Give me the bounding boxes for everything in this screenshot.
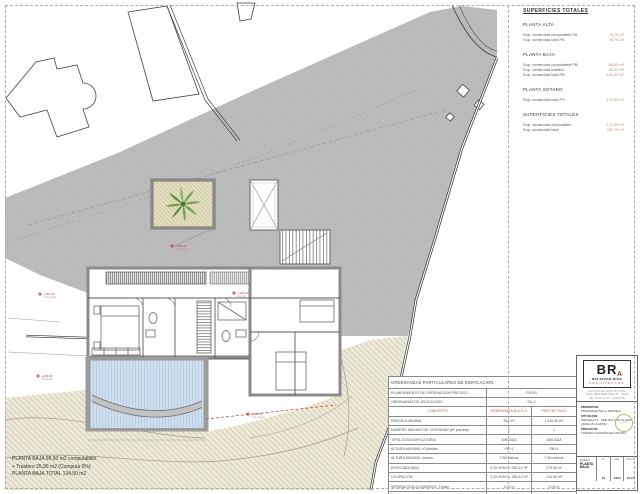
table-row: SEPARACION A LINDEROS, Fondo3,00 m3,00 m <box>389 482 577 491</box>
svg-text:cota jardin: cota jardin <box>42 378 54 381</box>
logo-initials: BR <box>584 364 630 376</box>
svg-text:cota piscina: cota piscina <box>252 416 266 419</box>
pool <box>86 357 209 440</box>
corridor-glazing-2 <box>210 272 250 284</box>
surfaces-panel: SUPERFICIES TOTALES PLANTA ALTA Sup. con… <box>509 0 640 355</box>
firm-contact: ESTUDIO DE ARQUITECTURA AVDA. MEDITERRAN… <box>580 390 634 400</box>
project-value: VIVIENDA UNIFAMILIAR AISLADA <box>581 432 633 436</box>
table-row: ALTURA MAXIMA, nº plantasPB+1PB+1 <box>389 444 577 453</box>
panel-divider-dashed <box>508 5 509 489</box>
scale-cell: ESC.1/100 <box>610 457 624 481</box>
promoter-value: PROPIEDAD DE LA PARCELA <box>581 410 633 414</box>
svg-text:+163,90: +163,90 <box>42 374 53 378</box>
note-line-3: PLANTA BAJA TOTAL 134,50 m2 <box>12 471 96 479</box>
corridor-glazing <box>106 272 206 284</box>
section-planta-alta: PLANTA ALTA <box>523 22 554 27</box>
svg-text:+165,00: +165,00 <box>238 291 249 295</box>
plan-strip: PLANO: PLANTA BAJA Nº03 ESC.1/100 FECHA0… <box>577 456 637 481</box>
svg-text:cota pb: cota pb <box>238 295 247 298</box>
table-row: OCUPACION0,25 m²/m² = 283,12 m²134,50 m² <box>389 473 577 482</box>
table-row: NUMERO MAXIMO DE VIVIENDAS (Nº parcela)1… <box>389 426 577 435</box>
plan-sheet: +164,25 cota porche +163,90 cota jardin … <box>0 0 640 494</box>
logo-accent-letter: A <box>617 371 622 378</box>
plan-number-cell: Nº03 <box>596 457 610 481</box>
firm-profession: ARQUITECTOS <box>584 381 630 385</box>
project-info: PROMOTOR: PROPIEDAD DE LA PARCELA SITUAC… <box>577 401 637 456</box>
svg-text:cota patio: cota patio <box>176 248 187 251</box>
ordinances-title: ORDENANZAS PARTICULARES DE EDIFICACION <box>389 377 577 389</box>
table-row: PARCELA MINIMA500 m²1.132,50 m² <box>389 416 577 425</box>
title-block: BR A BALTASAR RÍOS ARQUITECTOS ESTUDIO D… <box>576 355 638 491</box>
section-planta-baja: PLANTA BAJA <box>523 52 555 57</box>
small-parcel-outline <box>237 3 255 21</box>
svg-text:+165,30: +165,30 <box>176 244 187 248</box>
section-planta-sotano: PLANTA SÓTANO <box>523 87 563 92</box>
date-cell: FECHA04.16 <box>623 457 637 481</box>
table-row: TIPOLOGIA EDIFICATORIAAISLADAAISLADA <box>389 435 577 444</box>
neighbour-building-outline <box>6 58 96 137</box>
level-marker: +163,90 cota jardin <box>36 374 54 381</box>
section-totales: SUPERFICIES TOTALES <box>523 112 579 117</box>
road-parcel-outline <box>128 6 199 101</box>
surface-row: Sup. construida total PA76,76 m² <box>523 37 624 42</box>
surface-row: Sup. construida total PB134,50 m² <box>523 72 624 77</box>
plan-name: PLANTA BAJA <box>580 462 593 470</box>
note-line-2: + Trastero 35,90 m2 (Computa 0%) <box>12 464 96 472</box>
table-row: ALTURA MAXIMA, metros7,50 metros7,50 met… <box>389 454 577 463</box>
architect-logo: BR A BALTASAR RÍOS ARQUITECTOS <box>583 360 631 388</box>
svg-text:cota porche: cota porche <box>44 296 58 299</box>
svg-text:+162,50: +162,50 <box>252 412 263 416</box>
basement-stair <box>197 301 211 353</box>
area-note: PLANTA BAJA 98,60 m2 computables + Trast… <box>12 456 96 479</box>
note-line-1: PLANTA BAJA 98,60 m2 computables <box>12 456 96 464</box>
surfaces-title: SUPERFICIES TOTALES <box>523 8 588 14</box>
table-row: EDIFICABILIDAD0,25 m²/m² = 283,12 m²175,… <box>389 463 577 472</box>
svg-text:+164,25: +164,25 <box>44 292 55 296</box>
level-marker: +162,50 cota piscina <box>246 412 265 419</box>
surface-row: Sup. construida total PS121,50 m² <box>523 97 624 102</box>
level-marker: +164,25 cota porche <box>38 292 57 299</box>
ordinances-table: ORDENANZAS PARTICULARES DE EDIFICACION P… <box>388 376 576 494</box>
surface-row: Sup. construida total332,76 m² <box>523 127 624 132</box>
